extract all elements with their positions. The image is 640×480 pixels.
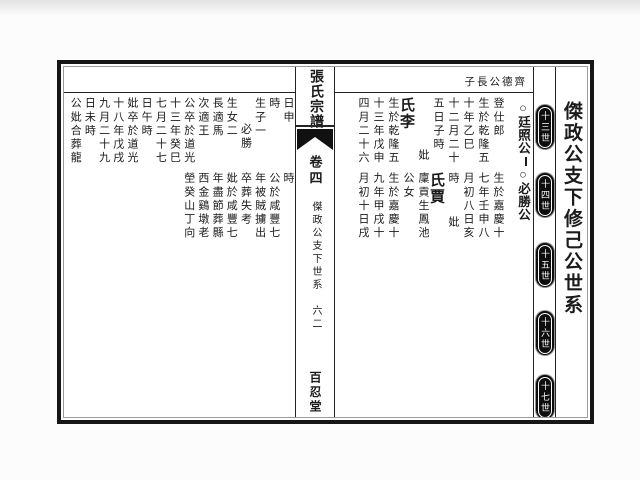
text-column: 十二月二十 (443, 97, 458, 169)
text-column: 十年乙巳 (458, 97, 473, 169)
entry-heading: ○廷照公○必勝公 (505, 101, 529, 271)
generation-badge: 十五世 (536, 243, 554, 287)
text-column: 西金鷄墩老 (194, 172, 208, 244)
text-column: 公女 (398, 172, 413, 244)
text-column: 次適王 (194, 97, 208, 169)
book-spine: 張氏宗譜 卷四 傑政公支下世系 六二 百忍堂 (295, 67, 335, 417)
text-column: 廩貢生鳳池 (413, 172, 428, 244)
text-column: 公卒於道光 (180, 97, 194, 169)
lineage-connector-line (525, 157, 527, 166)
text-column: 長適馬 (208, 97, 222, 169)
text-column: 十三年癸巳 (165, 97, 179, 169)
header-strip-right: 子長公德齊 (335, 67, 533, 93)
spouse-name: 氏李 (398, 97, 413, 169)
section-title: 傑政公支下修己公世系 (562, 101, 581, 316)
entry-heading-first: ○廷照公 (516, 101, 530, 155)
text-column: 七年壬申八 (473, 172, 488, 244)
text-column: 妣 (413, 97, 428, 169)
text-column: 十八年戊戌 (109, 97, 123, 169)
text-column: 年盡節葬縣 (208, 172, 222, 244)
spouse-name: 氏賈 (428, 172, 443, 244)
entry-row-upper-left: 日申 時 生子一 必勝 生女二 長適馬 次適王 公卒於道光 十三年癸巳 七月二十… (64, 97, 293, 169)
text-column: 年被賊擄出 (250, 172, 264, 244)
text-column: 九年甲戌十 (368, 172, 383, 244)
header-strip-left (64, 67, 295, 93)
entry-row-lower-right: 生於嘉慶十 七年壬申八 月初八日亥 時妣 氏賈 廩貢生鳳池 公女 生於嘉慶十 九… (337, 172, 503, 244)
text-column: 月初八日亥 (458, 172, 473, 244)
fishtail-icon (297, 129, 333, 150)
spine-hall-name: 百忍堂 (309, 371, 321, 415)
section-title-column: 傑政公支下修己公世系 (556, 67, 587, 417)
text-column: 時 (265, 97, 279, 169)
text-column: 日未時 (80, 97, 94, 169)
text-column: 四月二十六 (353, 97, 368, 169)
text-column: 生女二 (222, 97, 236, 169)
generation-badge: 十四世 (536, 173, 554, 217)
left-text-panel: 日申 時 生子一 必勝 生女二 長適馬 次適王 公卒於道光 十三年癸巳 七月二十… (64, 67, 295, 417)
right-panel-body: ○廷照公○必勝公 登仕郎 生於乾隆五 十年乙巳 十二月二十 五日子時 妣 氏李 … (335, 97, 533, 417)
text-column: 生於嘉慶十 (488, 172, 503, 244)
genealogy-page: 日申 時 生子一 必勝 生女二 長適馬 次適王 公卒於道光 十三年癸巳 七月二十… (0, 0, 640, 480)
text-column: 妣卒於道光 (123, 97, 137, 169)
generation-badge: 十三世 (536, 105, 554, 149)
inner-frame: 日申 時 生子一 必勝 生女二 長適馬 次適王 公卒於道光 十三年癸巳 七月二十… (63, 66, 588, 418)
text-column: 公於咸豐七 (265, 172, 279, 244)
generation-badge: 十七世 (536, 375, 554, 418)
entry-row-lower-left: 時 公於咸豐七 年被賊擄出 卒葬失考 妣於咸豐七 年盡節葬縣 西金鷄墩老 塋癸山… (64, 172, 293, 244)
text-column: 時 (279, 172, 293, 244)
text-column: 生於乾隆五 (383, 97, 398, 169)
entry-heading-second: ○必勝公 (516, 168, 530, 222)
entry-row-upper-right: 登仕郎 生於乾隆五 十年乙巳 十二月二十 五日子時 妣 氏李 生於乾隆五 十三年… (337, 97, 503, 169)
text-column: 生於嘉慶十 (383, 172, 398, 244)
spine-section: 傑政公支下世系 (310, 201, 320, 292)
text-column: 登仕郎 (488, 97, 503, 169)
spine-book-title: 張氏宗譜 (308, 69, 322, 129)
spine-page-number: 六二 (310, 305, 320, 331)
generation-badge: 十六世 (536, 311, 554, 355)
text-column: 日午時 (137, 97, 151, 169)
spine-volume: 卷四 (309, 155, 322, 187)
text-column: 卒葬失考 (236, 172, 250, 244)
text-column: 生於乾隆五 (473, 97, 488, 169)
text-column: 妣於咸豐七 (222, 172, 236, 244)
generation-badge-column: 十三世 十四世 十五世 十六世 十七世 (533, 67, 556, 417)
text-column: 月初十日戌 (353, 172, 368, 244)
text-column: 十三年戊申 (368, 97, 383, 169)
text-column: 塋癸山丁向 (180, 172, 194, 244)
son-name-column: 必勝 (236, 97, 250, 169)
text-column: 時妣 (443, 172, 458, 244)
text-column: 五日子時 (428, 97, 443, 169)
text-column: 日申 (279, 97, 293, 169)
text-column: 生子一 (250, 97, 264, 169)
spine-divider (296, 125, 334, 127)
text-column: 七月二十七 (151, 97, 165, 169)
lineage-note: 子長公德齊 (465, 74, 528, 89)
left-panel-body: 日申 時 生子一 必勝 生女二 長適馬 次適王 公卒於道光 十三年癸巳 七月二十… (64, 97, 295, 417)
text-column: 公妣合葬龍 (66, 97, 80, 169)
text-column: 九月二十九 (94, 97, 108, 169)
right-text-panel: 子長公德齊 ○廷照公○必勝公 登仕郎 生於乾隆五 十年乙巳 十二月二十 五日子時… (335, 67, 533, 417)
page-frame: 日申 時 生子一 必勝 生女二 長適馬 次適王 公卒於道光 十三年癸巳 七月二十… (57, 60, 594, 424)
